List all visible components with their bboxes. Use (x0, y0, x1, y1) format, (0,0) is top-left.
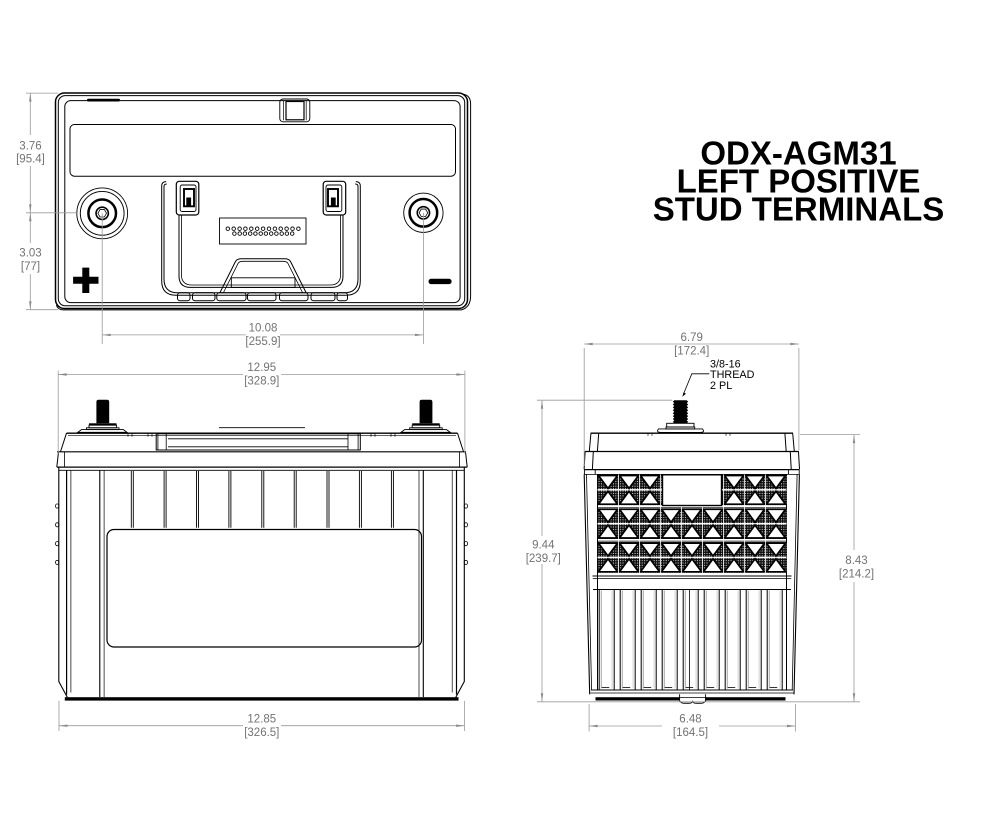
svg-text:[95.4]: [95.4] (16, 154, 45, 166)
svg-text:[77]: [77] (21, 261, 40, 273)
svg-text:[255.9]: [255.9] (245, 336, 280, 348)
svg-text:3.03: 3.03 (19, 248, 41, 260)
svg-text:6.79: 6.79 (681, 332, 703, 344)
svg-text:9.44: 9.44 (532, 540, 555, 552)
svg-text:[326.5]: [326.5] (244, 727, 279, 739)
svg-text:8.43: 8.43 (845, 555, 867, 567)
svg-text:[239.7]: [239.7] (526, 553, 561, 565)
svg-text:[172.4]: [172.4] (674, 346, 709, 358)
svg-text:6.48: 6.48 (679, 714, 701, 726)
svg-text:10.08: 10.08 (249, 323, 278, 335)
svg-text:STUD TERMINALS: STUD TERMINALS (653, 191, 945, 228)
svg-text:2 PL: 2 PL (710, 380, 732, 392)
svg-text:3.76: 3.76 (19, 141, 41, 153)
svg-text:12.95: 12.95 (247, 362, 276, 374)
svg-text:[164.5]: [164.5] (673, 727, 708, 739)
svg-text:12.85: 12.85 (247, 713, 276, 725)
svg-text:[328.9]: [328.9] (244, 376, 279, 388)
svg-text:[214.2]: [214.2] (839, 569, 874, 581)
